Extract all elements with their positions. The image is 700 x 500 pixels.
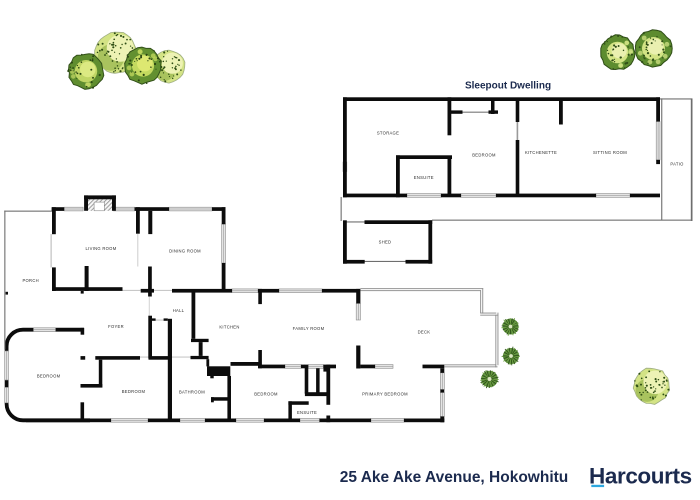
svg-text:PORCH: PORCH (22, 278, 38, 283)
svg-text:KITCHENETTE: KITCHENETTE (525, 150, 557, 155)
svg-text:DECK: DECK (418, 329, 431, 334)
svg-text:FOYER: FOYER (108, 324, 124, 329)
svg-text:BEDROOM: BEDROOM (37, 373, 61, 378)
svg-text:Sleepout Dwelling: Sleepout Dwelling (465, 80, 551, 91)
svg-text:ENSUITE: ENSUITE (297, 410, 317, 415)
svg-text:PRIMARY BEDROOM: PRIMARY BEDROOM (362, 391, 408, 396)
svg-text:SHED: SHED (379, 239, 392, 244)
svg-text:FAMILY ROOM: FAMILY ROOM (293, 326, 325, 331)
svg-text:KITCHEN: KITCHEN (219, 324, 239, 329)
svg-text:BATHROOM: BATHROOM (179, 389, 205, 394)
svg-text:LIVING ROOM: LIVING ROOM (86, 246, 117, 251)
svg-text:SITTING ROOM: SITTING ROOM (593, 150, 627, 155)
svg-text:BEDROOM: BEDROOM (254, 391, 278, 396)
svg-text:DINING ROOM: DINING ROOM (169, 248, 201, 253)
svg-text:25 Ake Ake Avenue, Hokowhitu: 25 Ake Ake Avenue, Hokowhitu (340, 469, 569, 486)
svg-text:BEDROOM: BEDROOM (472, 152, 496, 157)
svg-text:Harcourts: Harcourts (589, 464, 692, 489)
svg-text:PATIO: PATIO (670, 161, 684, 166)
svg-text:HALL: HALL (173, 308, 185, 313)
svg-text:ENSUITE: ENSUITE (414, 175, 434, 180)
svg-text:BEDROOM: BEDROOM (122, 389, 146, 394)
svg-text:STORAGE: STORAGE (377, 130, 399, 135)
